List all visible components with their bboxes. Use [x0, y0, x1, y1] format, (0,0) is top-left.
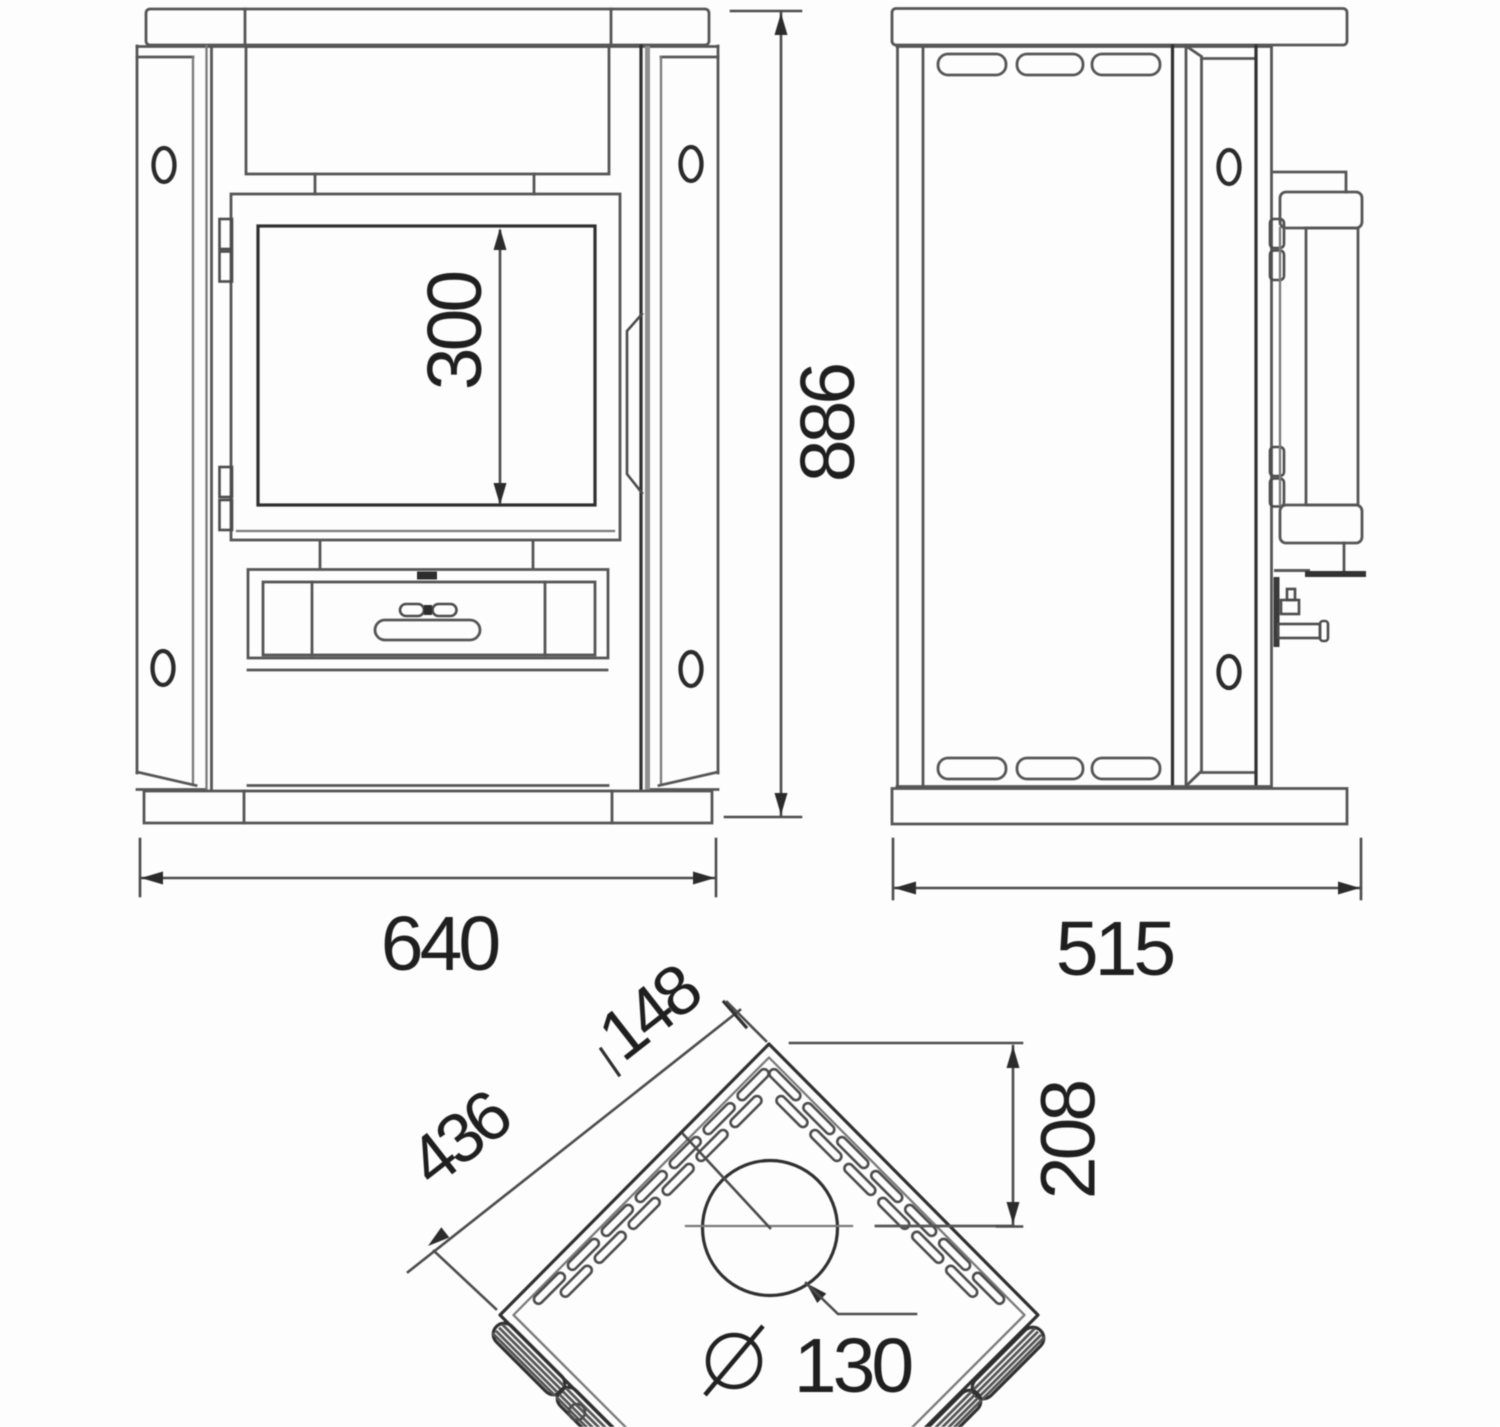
svg-text:130: 130	[794, 1323, 912, 1409]
svg-text:515: 515	[1056, 906, 1174, 992]
svg-text:886: 886	[785, 365, 871, 483]
svg-text:208: 208	[1026, 1082, 1112, 1200]
svg-text:300: 300	[412, 273, 498, 391]
svg-text:640: 640	[381, 901, 499, 987]
